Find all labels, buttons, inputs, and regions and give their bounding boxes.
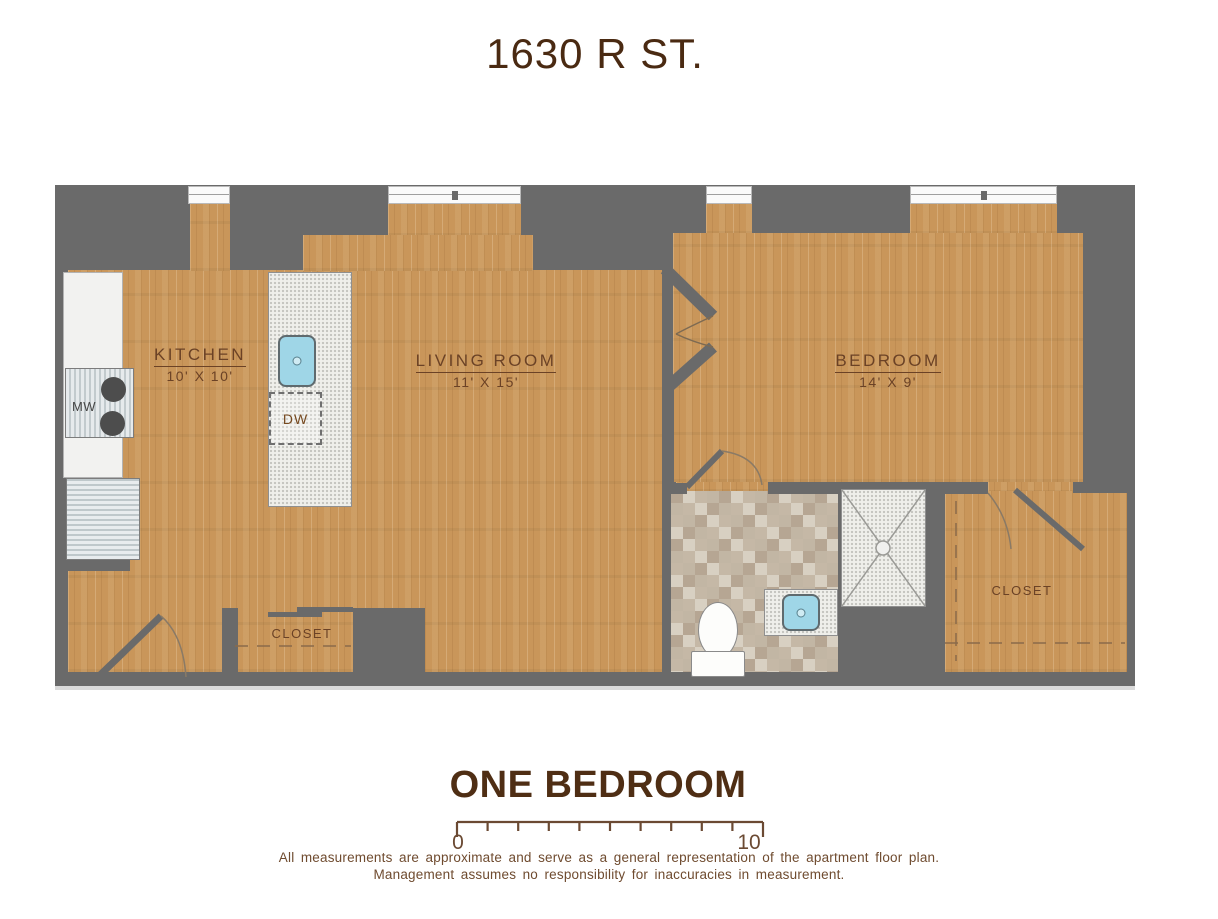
- disclaimer-line-2: Management assumes no responsibility for…: [0, 867, 1218, 882]
- kitchen-name: KITCHEN: [154, 344, 246, 367]
- bathroom-door-leaf: [687, 451, 722, 487]
- living-room-name: LIVING ROOM: [416, 350, 557, 373]
- living-room-label: LIVING ROOM 11' X 15': [411, 350, 561, 393]
- kitchen-dims: 10' X 10': [166, 368, 233, 384]
- microwave-label: MW: [64, 399, 104, 414]
- closet-door-arc: [988, 493, 1011, 549]
- bedroom-label: BEDROOM 14' X 9': [813, 350, 963, 393]
- angled-wall-lower: [667, 347, 713, 388]
- plan-type-title: ONE BEDROOM: [0, 764, 1196, 807]
- french-door-arc-lower: [676, 334, 713, 347]
- french-door-arc-upper: [676, 316, 713, 334]
- living-room-dims: 11' X 15': [453, 374, 519, 390]
- shower-drain-icon: [876, 541, 890, 555]
- doors-overlay: [55, 185, 1135, 690]
- bedroom-closet-label: CLOSET: [962, 583, 1082, 598]
- page-title: 1630 R ST.: [0, 30, 1190, 78]
- angled-wall-upper: [665, 269, 713, 316]
- bedroom-dims: 14' X 9': [859, 374, 917, 390]
- floor-plan-page: { "title": "1630 R ST.", "plan_type": "O…: [0, 0, 1218, 919]
- bedroom-name: BEDROOM: [835, 350, 940, 373]
- disclaimer-line-1: All measurements are approximate and ser…: [0, 850, 1218, 865]
- bathroom-door-arc: [722, 451, 762, 485]
- kitchen-label: KITCHEN 10' X 10': [130, 344, 270, 387]
- floor-plan: DW: [55, 185, 1135, 690]
- entry-door-leaf: [98, 616, 161, 677]
- entry-door-arc: [161, 616, 186, 677]
- scale-bar: [450, 810, 770, 852]
- hall-closet-label: CLOSET: [242, 626, 362, 641]
- scale-bar-ticks: [457, 822, 763, 837]
- closet-door-leaf: [1015, 490, 1083, 549]
